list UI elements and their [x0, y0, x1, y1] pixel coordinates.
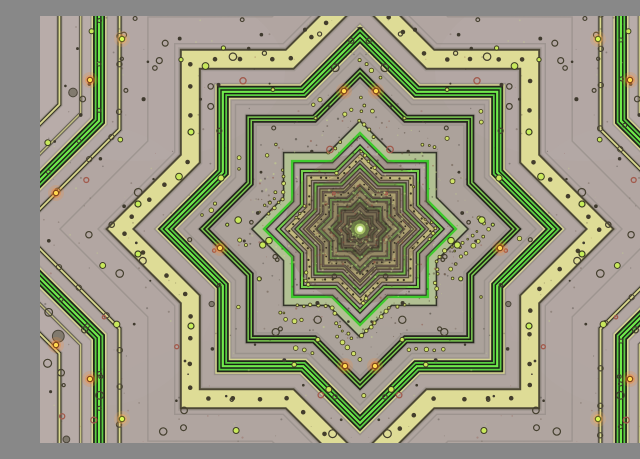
kaleidoscope-figure [40, 16, 640, 443]
kaleidoscope-svg [40, 16, 640, 443]
